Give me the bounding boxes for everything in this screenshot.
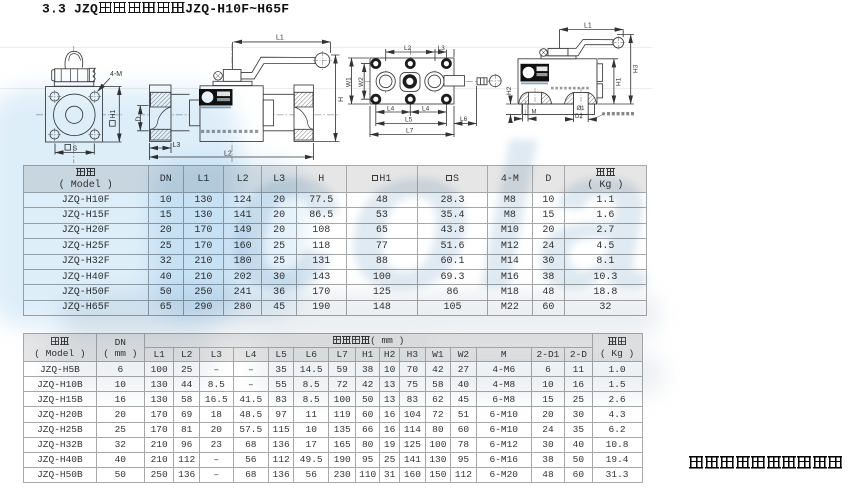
svg-text:H1: H1 [110,109,117,118]
svg-text:W2: W2 [358,77,365,87]
svg-text:L2: L2 [404,45,412,52]
svg-text:L4: L4 [422,106,430,113]
svg-text:M: M [532,110,537,116]
svg-text:L4: L4 [387,106,395,113]
svg-text:4-M: 4-M [110,71,122,78]
svg-text:D2: D2 [575,114,583,120]
svg-text:S: S [73,146,78,153]
svg-text:H3: H3 [633,64,640,73]
svg-text:H: H [338,97,345,102]
svg-text:L3: L3 [173,142,181,149]
svg-text:H2: H2 [506,86,513,95]
svg-text:L1: L1 [276,35,284,42]
svg-text:L5: L5 [405,117,413,124]
svg-text:L2: L2 [224,151,232,158]
svg-text:W1: W1 [346,77,353,87]
svg-text:H1: H1 [616,77,623,86]
svg-text:L1: L1 [584,23,592,30]
svg-text:L7: L7 [406,128,414,135]
svg-text:L3: L3 [438,45,446,52]
svg-text:D: D [136,116,143,121]
svg-text:Ø1: Ø1 [577,106,586,112]
svg-text:L6: L6 [460,116,468,123]
